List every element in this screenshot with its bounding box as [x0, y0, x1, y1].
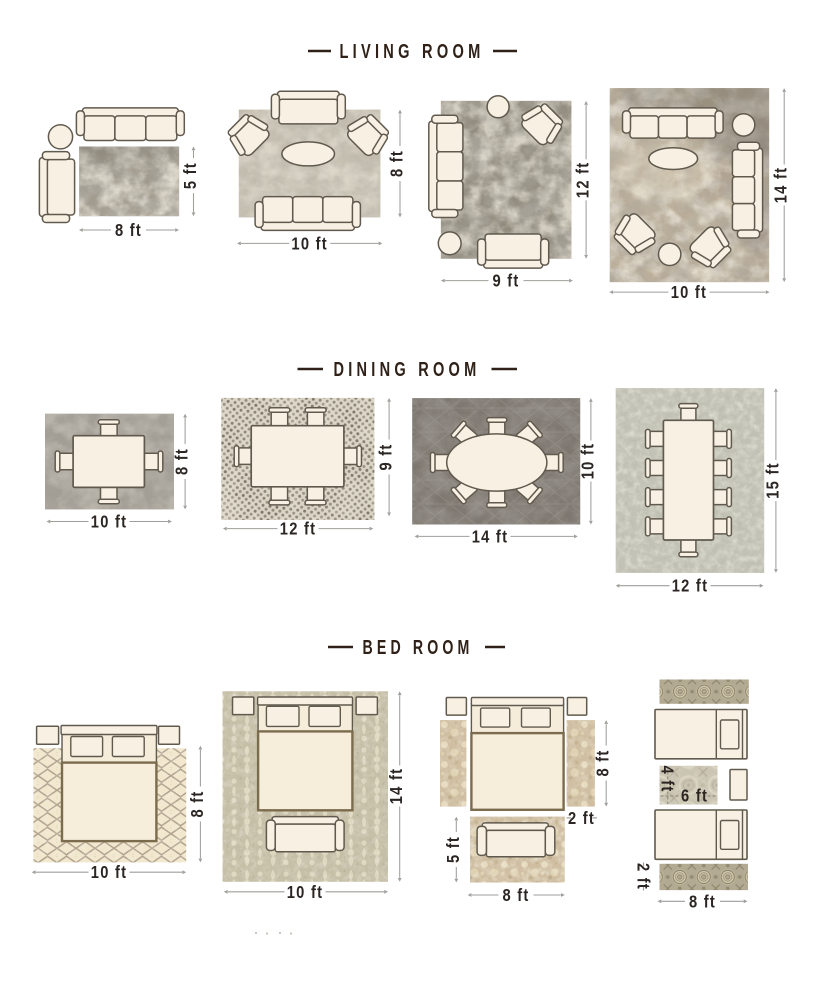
svg-text:LIVING ROOM: LIVING ROOM [339, 39, 484, 62]
svg-text:DINING ROOM: DINING ROOM [333, 357, 480, 380]
svg-text:12 ft: 12 ft [672, 577, 709, 596]
svg-text:6 ft: 6 ft [681, 786, 708, 805]
svg-text:8 ft: 8 ft [502, 886, 529, 905]
svg-text:10 ft: 10 ft [91, 863, 128, 882]
svg-text:15 ft: 15 ft [763, 462, 782, 499]
svg-text:14 ft: 14 ft [472, 527, 509, 546]
svg-text:5 ft: 5 ft [181, 162, 200, 189]
svg-text:BED ROOM: BED ROOM [363, 635, 474, 658]
svg-text:8 ft: 8 ft [115, 221, 142, 240]
svg-text:8 ft: 8 ft [689, 892, 716, 911]
svg-text:9 ft: 9 ft [492, 271, 519, 290]
svg-text:5 ft: 5 ft [444, 836, 463, 863]
svg-text:8 ft: 8 ft [188, 790, 207, 817]
svg-text:10 ft: 10 ft [91, 512, 128, 531]
svg-text:12 ft: 12 ft [573, 162, 592, 199]
svg-text:10 ft: 10 ft [287, 883, 324, 902]
svg-text:9 ft: 9 ft [376, 443, 395, 470]
svg-text:8 ft: 8 ft [594, 749, 613, 776]
svg-text:8 ft: 8 ft [387, 150, 406, 177]
svg-text:12 ft: 12 ft [280, 519, 317, 538]
svg-text:8 ft: 8 ft [172, 448, 191, 475]
svg-text:14 ft: 14 ft [772, 167, 791, 204]
svg-text:10 ft: 10 ft [291, 234, 328, 253]
svg-text:2 ft: 2 ft [568, 809, 595, 828]
svg-text:10 ft: 10 ft [578, 443, 597, 480]
svg-text:14 ft: 14 ft [387, 768, 406, 805]
svg-text:10 ft: 10 ft [671, 283, 708, 302]
svg-text:2 ft: 2 ft [633, 863, 652, 890]
svg-text:4 ft: 4 ft [657, 765, 676, 792]
